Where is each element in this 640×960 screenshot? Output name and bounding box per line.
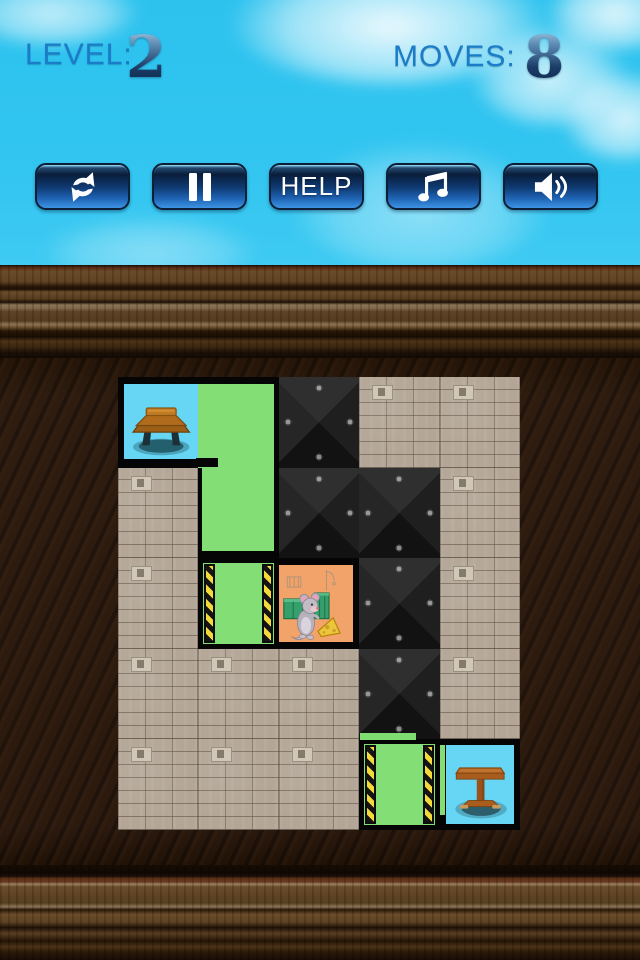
mouse-room-art <box>279 565 353 642</box>
wall-lab-lines <box>287 570 335 590</box>
moves-label: MOVES: <box>393 40 516 74</box>
hazard-stripe-right <box>423 745 434 824</box>
metal-wall-tile <box>359 558 439 649</box>
refresh-icon <box>63 169 103 205</box>
restart-button[interactable] <box>35 163 130 210</box>
music-button[interactable] <box>386 163 481 210</box>
sky-background: LEVEL: 2 MOVES: 8 <box>0 0 640 265</box>
hazard-stripe-left <box>204 564 215 643</box>
level-value: 2 <box>126 28 166 86</box>
music-note-icon <box>414 169 454 205</box>
help-button-label: HELP <box>281 171 353 202</box>
brick-wall-tile <box>198 739 278 830</box>
brick-wall-tile <box>440 468 520 559</box>
brick-wall-tile <box>440 649 520 740</box>
help-button[interactable]: HELP <box>269 163 364 210</box>
goal-room-tile <box>440 739 520 830</box>
level-label: LEVEL: <box>25 38 133 72</box>
pause-button[interactable] <box>152 163 247 210</box>
mouse-room-tile <box>279 558 359 649</box>
hazard-door-tile[interactable] <box>359 739 439 830</box>
puzzle-board <box>118 377 520 830</box>
green-block-top[interactable] <box>198 377 278 468</box>
brick-wall-tile <box>279 649 359 740</box>
door-green-sliver <box>360 733 416 740</box>
metal-wall-tile <box>279 377 359 468</box>
moves-value: 8 <box>524 28 564 86</box>
hazard-stripe-right <box>262 564 273 643</box>
brick-wall-tile <box>440 377 520 468</box>
pause-icon <box>183 171 217 203</box>
toolbar: HELP <box>35 163 603 210</box>
brick-wall-tile <box>118 649 198 740</box>
cloud <box>40 215 260 265</box>
brick-wall-tile <box>118 468 198 559</box>
metal-wall-tile <box>279 468 359 559</box>
wood-shelf-bottom <box>0 865 640 960</box>
brick-wall-tile <box>440 558 520 649</box>
sound-button[interactable] <box>503 163 598 210</box>
table-icon <box>446 745 514 824</box>
speaker-icon <box>530 170 572 204</box>
bench-icon <box>124 384 198 459</box>
brick-wall-tile <box>118 558 198 649</box>
brick-wall-tile <box>359 377 439 468</box>
game-screen: LEVEL: 2 MOVES: 8 <box>0 0 640 960</box>
start-room-tile <box>118 377 198 468</box>
metal-wall-tile <box>359 649 439 740</box>
wood-shelf-top <box>0 265 640 358</box>
hazard-stripe-left <box>365 745 376 824</box>
brick-wall-tile <box>198 649 278 740</box>
cheese-icon <box>318 618 340 637</box>
brick-wall-tile <box>279 739 359 830</box>
green-block-bottom[interactable] <box>198 468 278 559</box>
metal-wall-tile <box>359 468 439 559</box>
brick-wall-tile <box>118 739 198 830</box>
start-room-border-notch <box>196 458 218 467</box>
hazard-door-tile[interactable] <box>198 558 278 649</box>
